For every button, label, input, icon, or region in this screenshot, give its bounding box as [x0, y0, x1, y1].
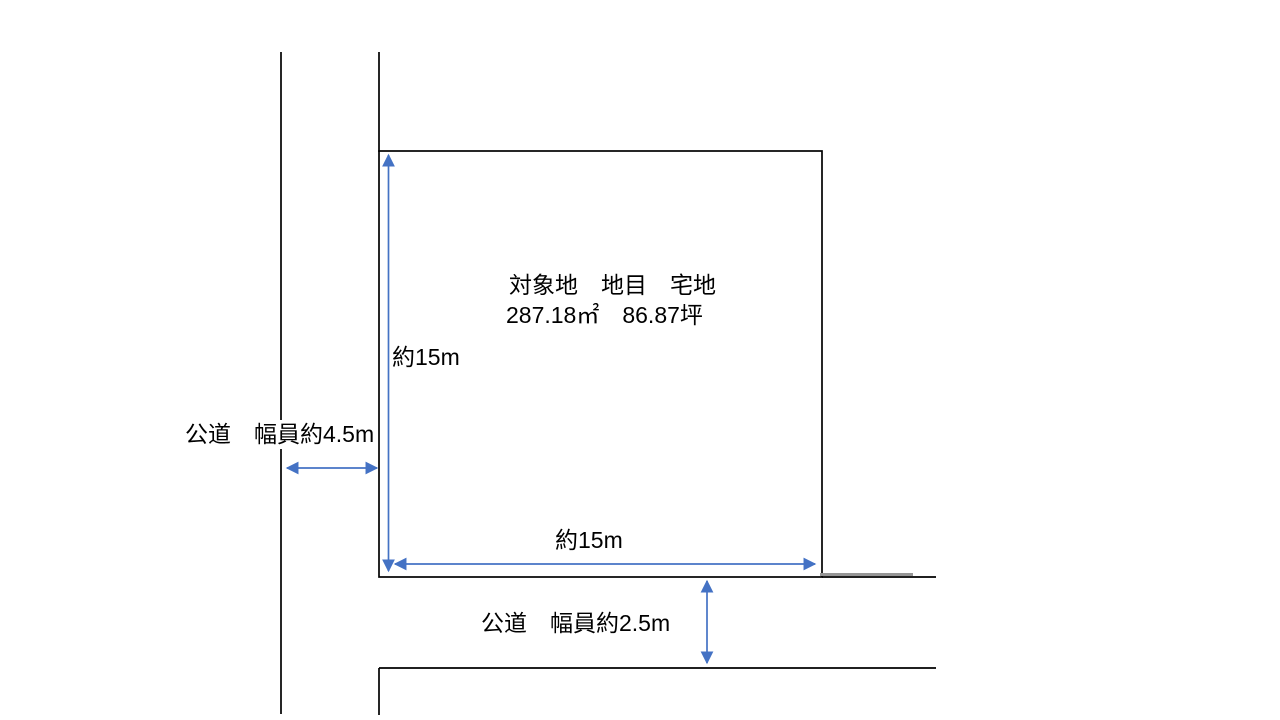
road-left-label: 公道 幅員約4.5m [184, 420, 375, 449]
parcel-height-label: 約15m [391, 343, 461, 372]
road-bottom-label: 公道 幅員約2.5m [480, 609, 671, 638]
parcel-width-label: 約15m [554, 526, 624, 555]
parcel-title-label: 対象地 地目 宅地 [508, 271, 717, 300]
parcel-area-label: 287.18㎡ 86.87坪 [505, 301, 704, 330]
site-plan-canvas: 対象地 地目 宅地 287.18㎡ 86.87坪 約15m 約15m 公道 幅員… [0, 0, 1280, 720]
